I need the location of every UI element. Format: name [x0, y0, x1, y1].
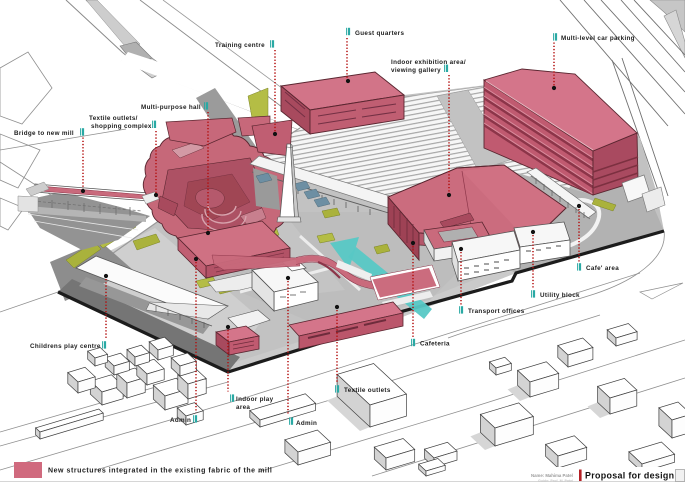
svg-text:Textile outlets: Textile outlets [344, 387, 391, 394]
svg-text:Cafe' area: Cafe' area [586, 265, 619, 272]
svg-text:New structures integrated in t: New structures integrated in the existin… [48, 468, 272, 475]
svg-text:Childrens play centre: Childrens play centre [30, 343, 101, 350]
svg-text:Guest quarters: Guest quarters [355, 30, 404, 37]
svg-text:Transport offices: Transport offices [468, 308, 525, 315]
svg-text:Indoor play: Indoor play [236, 396, 274, 403]
svg-text:Bridge to new mill: Bridge to new mill [14, 130, 74, 137]
svg-text:Multi-level car parking: Multi-level car parking [561, 35, 635, 42]
svg-text:Textile outlets/: Textile outlets/ [89, 115, 138, 122]
svg-text:Proposal for design: Proposal for design [585, 471, 674, 481]
svg-text:Indoor exhibition area/: Indoor exhibition area/ [391, 59, 466, 66]
svg-text:Utility block: Utility block [540, 292, 580, 299]
svg-text:viewing gallery: viewing gallery [391, 67, 441, 74]
svg-text:Admin: Admin [296, 420, 317, 427]
svg-text:Multi-purpose hall: Multi-purpose hall [141, 104, 201, 111]
svg-text:area: area [236, 404, 250, 411]
svg-text:Name: Mahima Patel: Name: Mahima Patel [531, 473, 573, 478]
svg-text:Guide: Prof. M. Patel: Guide: Prof. M. Patel [538, 479, 573, 483]
svg-text:Training centre: Training centre [215, 42, 265, 49]
svg-text:shopping complex: shopping complex [91, 123, 152, 130]
svg-text:Admin: Admin [170, 417, 191, 424]
svg-text:Cafeteria: Cafeteria [420, 341, 450, 348]
